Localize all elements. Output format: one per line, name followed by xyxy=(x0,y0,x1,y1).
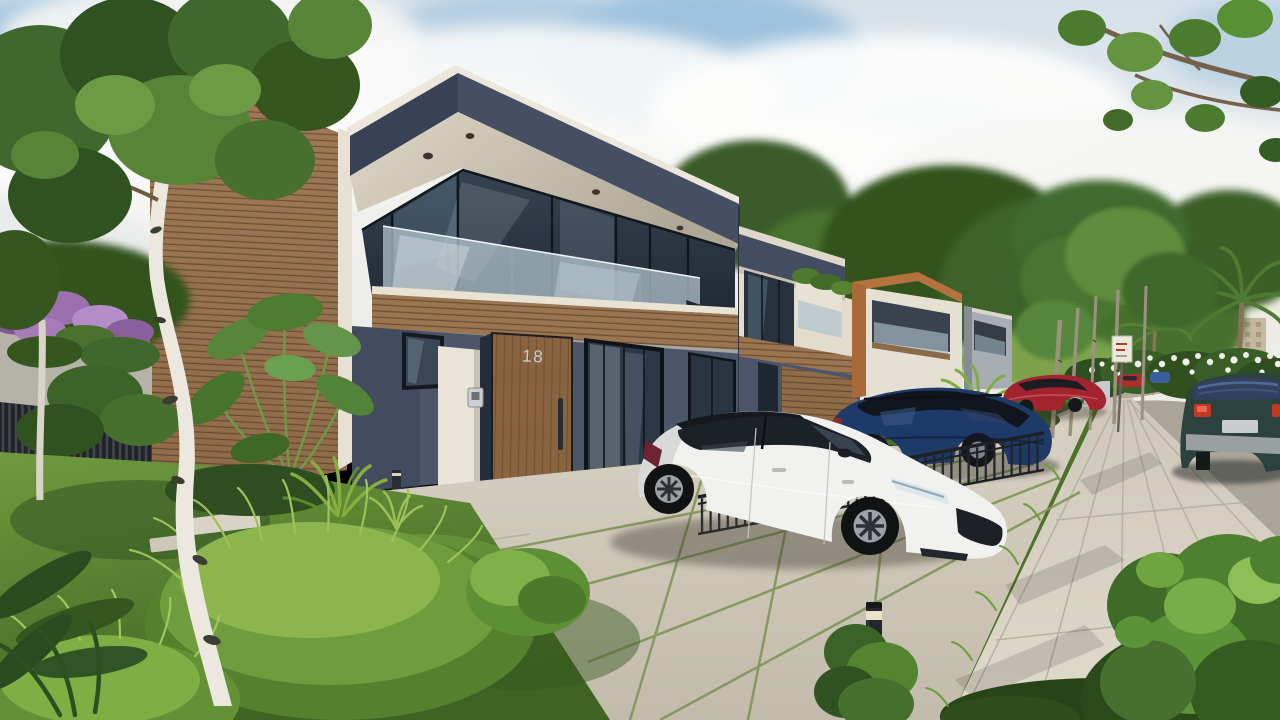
side-mirror xyxy=(838,449,852,458)
garden-bollard-light xyxy=(392,470,401,492)
door-handle xyxy=(842,480,854,484)
door-handle xyxy=(772,468,786,472)
architectural-render-image: 18 xyxy=(0,0,1280,720)
house-number: 18 xyxy=(522,346,545,366)
corner-trim xyxy=(338,128,352,470)
center-bush xyxy=(466,548,590,636)
rear-wheel xyxy=(644,464,694,514)
green-suv-wheel xyxy=(1196,452,1210,470)
distant-blue-car xyxy=(1150,372,1170,383)
narrow-window xyxy=(402,332,444,390)
distant-car-glass xyxy=(1123,376,1137,381)
green-suv-taillight-right xyxy=(1272,404,1280,417)
third-house-wood-pillar xyxy=(852,282,866,398)
intercom-panel xyxy=(468,388,483,407)
door-handle xyxy=(558,398,563,450)
birch-trunk-2 xyxy=(40,320,43,500)
door-recess xyxy=(480,333,492,504)
fourth-house xyxy=(964,306,1012,390)
front-wheel xyxy=(841,497,899,555)
green-suv-plate xyxy=(1222,420,1258,433)
bollard-lamp xyxy=(866,611,882,620)
